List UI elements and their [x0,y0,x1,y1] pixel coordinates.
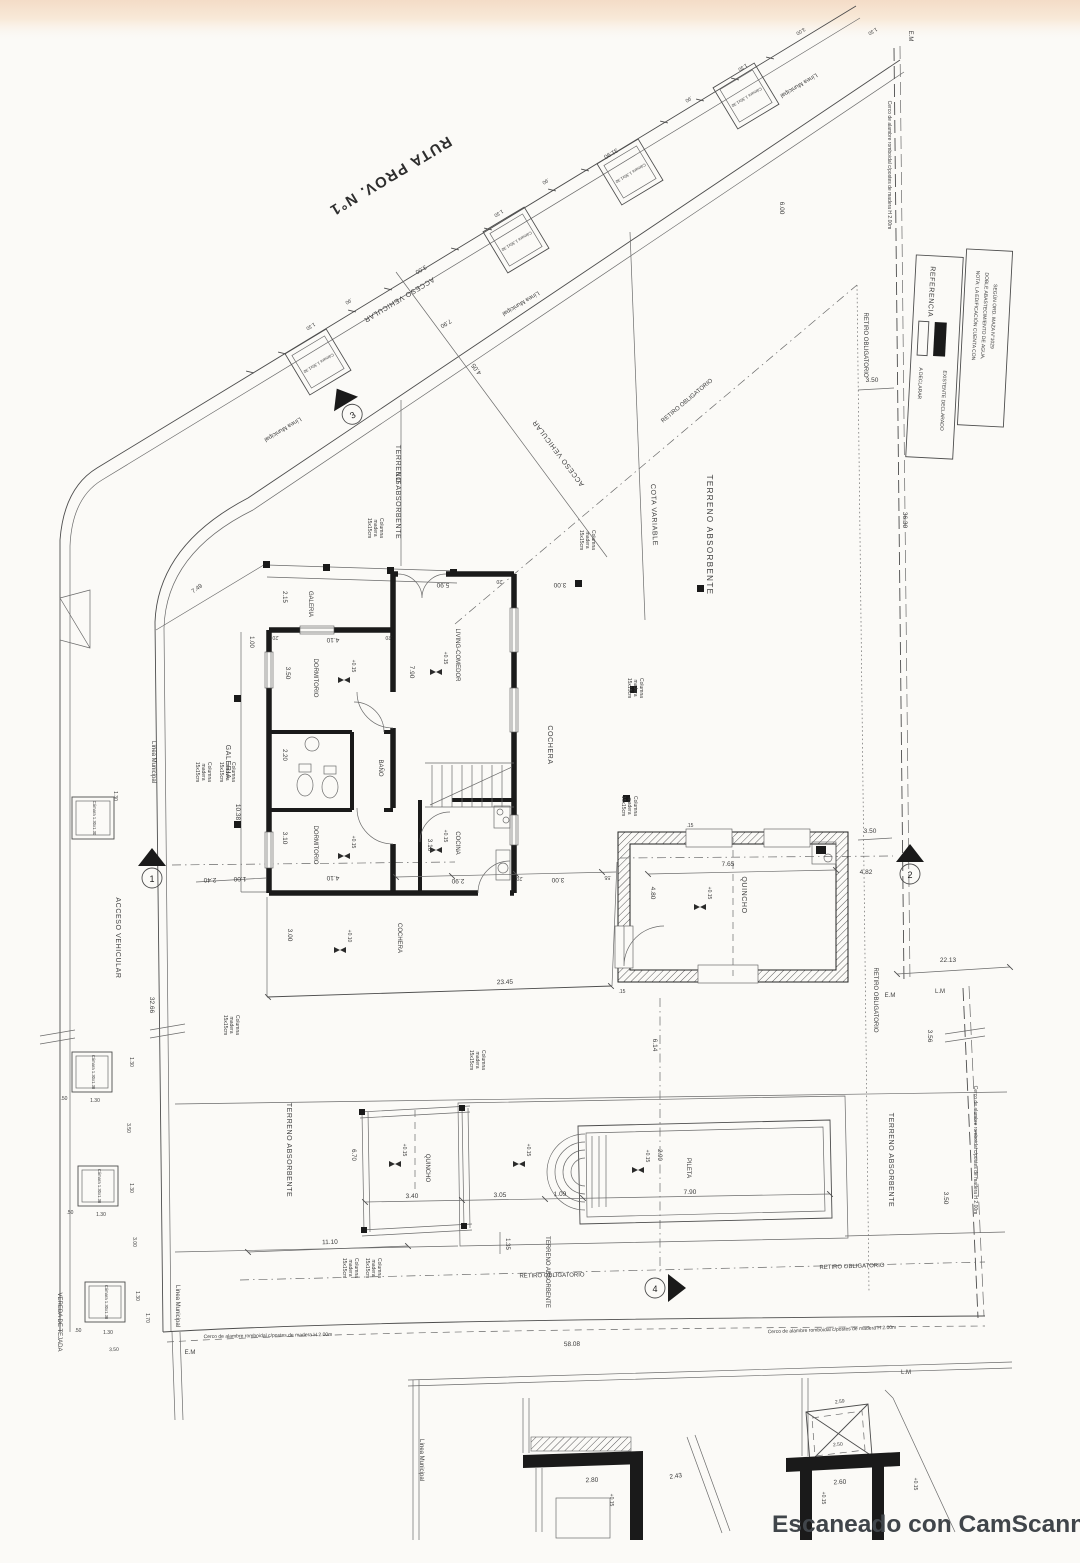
house-plan-part [234,821,241,828]
dim: 3.10 [281,832,288,845]
dim: 22.13 [940,957,957,964]
terrain-label: TERRENO ABSORBENTE [544,1236,550,1308]
house-plan-part [234,695,241,702]
setback-label: RETIRO OBLIGATORIO [862,312,868,377]
dim: 58.08 [564,1341,581,1348]
chamber-label: Cámara 1.30x1.30 [97,1169,102,1204]
column-notes-part: Columnamadera15x15cm [218,762,236,782]
dim: 3.56 [926,1030,933,1043]
dim: 6.70 [350,1149,356,1161]
house-plan-part [697,585,704,592]
room-label-pileta: PILETA [685,1158,691,1178]
setback-label: RETIRO OBLIGATORIO [872,967,878,1032]
municipal-line-label: Línea Municipal [418,1439,424,1481]
col-note: 15x15cm [218,762,224,782]
dim: 6.14 [651,1039,658,1052]
dim: 2.40 [203,876,216,883]
dim: 1.35 [504,1238,510,1250]
dim: 2.60 [833,1479,846,1487]
column-notes-part: Columnamadera15x15cm [364,1258,382,1278]
dim: 2.59 [835,1398,846,1405]
column-notes-part: Columnamadera15x15cm [366,518,384,538]
dim: 32.66 [148,997,155,1014]
dim: 1.30 [96,1212,106,1218]
dim: 1.09 [554,1191,567,1198]
dim: .15 [619,989,626,995]
col-note: 15x15cm [468,1050,474,1070]
level: +0.15 [820,1492,826,1505]
col-note: 15x15cm [364,1258,370,1278]
room-label-banio: BAÑO [377,759,384,776]
dim: 23.45 [497,979,514,987]
house-plan-part [323,564,330,571]
level: +0.15 [350,836,356,849]
house-plan-part [265,832,273,868]
house-plan-part [510,815,518,845]
dim: 3.50 [284,667,291,680]
pool-area-part [361,1227,367,1233]
chamber-label: Cámara 1.30x1.30 [92,801,97,836]
dim: 5.90 [436,581,449,588]
dim: 1.00 [248,636,254,648]
pool-area-part [359,1109,365,1115]
col-note: 15x15cm [366,518,372,538]
level: +0.15 [644,1150,650,1163]
dim: .20 [516,875,523,881]
dim: 4.10 [326,636,339,643]
dim: 6.00 [778,202,785,215]
dim: 1.30 [128,1183,134,1193]
dim: 2.90 [656,1149,662,1161]
dim: .20 [272,634,279,640]
section-mar ker-2: 2 [907,870,912,880]
house-plan-part [263,561,270,568]
dim: 7.90 [684,1189,697,1196]
dim: 2.15 [281,591,287,603]
access-label-street: ACCESO VEHICULAR [114,897,121,978]
house-plan-part [300,626,334,634]
dim: 3.05 [494,1192,507,1199]
scanned-site-plan-page: Cámara 1.30x1.30 Cámara 1.30x1.30 Cámara… [0,0,1080,1563]
fence-label-right-low: Cerco de alambre romboidal c/postes de m… [972,1086,978,1215]
dim: 4.80 [649,887,656,900]
col-note: 15x15cm [626,678,632,698]
dim: 3.00 [286,929,293,942]
column-notes-part: Columnamadera15x15cm [194,762,212,782]
dim: 1.30 [112,791,118,801]
setback-label: RETIRO OBLIGATORIO [519,1272,585,1279]
level: +0.15 [912,1478,918,1491]
em-label: E.M [885,993,896,999]
dim: 10.38 [234,804,241,821]
house-plan-part [575,580,582,587]
chamber-label: Cámara 1.30x1.30 [91,1055,96,1090]
dim: 4.10 [326,874,339,881]
chamber-label: Cámara 1.30x1.30 [104,1285,109,1320]
room-label-dormitorio-1: DORMITORIO [312,659,318,698]
col-note: 15x15cm [222,1015,228,1035]
col-note: 15x15cm [194,762,200,782]
quincho-building-part [816,846,826,854]
lm-label: L.M [901,1370,911,1376]
terrain-label: TERRENO ABSORBENTE [887,1113,894,1207]
dim: 1.30 [128,1057,134,1067]
municipal-line-label: Línea Municipal [150,741,156,783]
room-label-cochera-east: COCHERA [546,725,553,764]
dim: 3.10 [426,839,433,852]
level: +0.10 [346,930,352,943]
column-notes-part: Columnamadera15x15cm [222,1015,240,1035]
dim: .55 [604,874,611,880]
room-label-quincho-small: QUINCHO [424,1154,430,1183]
dim: 3.50 [866,377,879,384]
dim: 3.00 [551,876,564,883]
legend-symbol-existing [933,322,947,357]
dim: .50 [75,1328,82,1334]
dim: 3.00 [553,581,566,588]
dim: 1.00 [233,875,246,882]
dim: .15 [687,823,694,829]
dim: 2.90 [451,877,464,884]
dim: 2.50 [833,1442,843,1449]
dim: 7.90 [408,666,415,679]
quincho-building-part [698,965,758,983]
dim: 1.30 [90,1098,100,1104]
lm-label: L.M [935,989,945,995]
dim: 2.20 [281,749,287,761]
dim: 7.65 [722,861,735,868]
site-plan-scan: Cámara 1.30x1.30 Cámara 1.30x1.30 Cámara… [0,0,1080,1563]
room-label-galeria: GALERIA [307,591,313,617]
pool-area-part [461,1223,467,1229]
dim: 3.40 [406,1193,419,1200]
section-marker-1: 1 [149,874,154,884]
room-label-dormitorio-2: DORMITORIO [312,826,318,865]
house-plan-part [265,652,273,688]
fence-label-right: Cerco de alambre romboidal c/postes de m… [886,101,892,230]
municipal-line-label: Línea Municipal [174,1285,180,1327]
room-label-living: LIVING-COMEDOR [454,628,460,682]
dim: 36.30 [901,512,908,529]
col-note: 15x15cm [620,796,626,816]
dim: 3.50 [942,1192,949,1205]
dim: 3.50 [864,828,877,835]
terrain-label: TERRENO ABSORBENTE [705,475,714,596]
dim: 3.00 [131,1237,137,1247]
dim: .20 [385,634,392,640]
level: +0.15 [401,1144,407,1157]
house-plan-part [387,567,394,574]
room-label-quincho: QUINCHO [740,876,747,913]
detail-drawings-part [531,1437,631,1451]
col-note: 15x15cm [578,530,584,550]
dim: .50 [67,1210,74,1216]
level: +0.15 [442,652,448,665]
column-notes-part: Columnamadera15x15cm [578,530,596,550]
dim: 1.30 [103,1330,113,1336]
room-label-cochera-south: COCHERA [396,923,402,953]
dim: .20 [496,578,503,584]
sidewalk-street-label: VEREDA DE TEJADA [56,1293,62,1352]
room-label-cocina: COCINA [454,831,460,854]
column-notes-part: Columnamadera15x15cm [468,1050,486,1070]
quincho-building-part [686,829,732,847]
level: +0.15 [608,1494,614,1507]
camscanner-watermark: Escaneado con CamScanner [772,1511,1080,1538]
pool-area-part [459,1105,465,1111]
dim: 1.30 [134,1291,140,1301]
em-label: E.M [907,31,913,42]
dim: 3.50 [125,1123,131,1133]
dim: 3.50 [109,1347,119,1353]
level: +0.15 [442,830,448,843]
section-marker-4: 4 [652,1284,657,1294]
dim: 4.82 [860,869,873,876]
level: +0.15 [525,1144,531,1157]
column-notes-part: Columnamadera15x15cm [620,796,638,816]
em-label: E.M [185,1350,196,1356]
detail-drawings-part [630,1464,643,1540]
terrain-label: TERRENO ABSORBENTE [285,1103,292,1197]
house-plan-part [510,608,518,652]
col-note: 15x15cm [341,1258,347,1278]
quincho-building-part [764,829,810,847]
column-notes-part: Columnamadera15x15cm [626,678,644,698]
paper [0,0,1080,1563]
scan-tint [0,0,1080,42]
column-notes-part: Columnamadera15x15cm [341,1258,359,1278]
dim: .50 [61,1096,68,1102]
level: +0.15 [350,660,356,673]
dim: 2.80 [586,1477,599,1484]
house-plan-part [510,688,518,732]
terrain-label: TERRENO ABSORBENTE [394,445,401,539]
dim: 1.70 [144,1313,150,1323]
dim: 11.10 [322,1239,338,1247]
level: +0.15 [706,887,712,900]
